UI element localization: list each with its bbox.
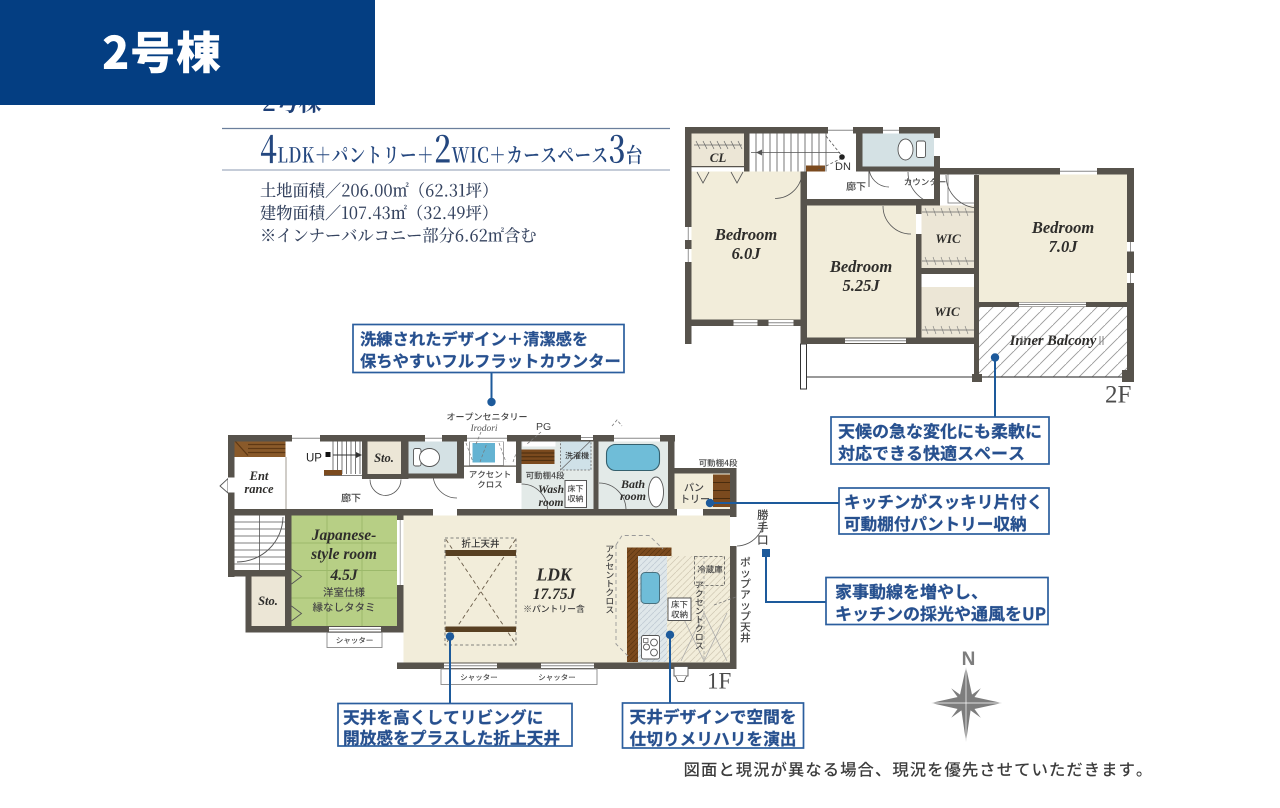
svg-text:17.75J: 17.75J — [533, 586, 577, 603]
svg-text:N: N — [962, 649, 976, 670]
svg-text:5.25J: 5.25J — [842, 276, 880, 295]
svg-text:style room: style room — [310, 546, 377, 563]
svg-text:Bedroom: Bedroom — [829, 257, 893, 276]
svg-text:room: room — [620, 489, 646, 503]
svg-text:7.0J: 7.0J — [1049, 237, 1079, 256]
svg-text:LDK: LDK — [536, 565, 573, 585]
svg-text:WIC: WIC — [934, 304, 960, 319]
svg-text:Bedroom: Bedroom — [1031, 218, 1095, 237]
svg-text:DN: DN — [835, 161, 851, 173]
svg-text:CL: CL — [710, 150, 727, 165]
svg-text:room: room — [539, 497, 564, 509]
svg-text:Ent: Ent — [249, 469, 269, 483]
svg-text:Japanese-: Japanese- — [311, 527, 377, 544]
svg-text:Irodori: Irodori — [469, 424, 497, 434]
svg-text:WIC: WIC — [935, 231, 961, 246]
svg-text:6.0J: 6.0J — [732, 244, 762, 263]
svg-text:UP: UP — [306, 453, 322, 465]
svg-text:1F: 1F — [707, 669, 731, 694]
svg-text:Bedroom: Bedroom — [714, 225, 778, 244]
svg-text:4.5J: 4.5J — [329, 567, 358, 584]
svg-text:Sto.: Sto. — [258, 594, 278, 608]
svg-text:2F: 2F — [1105, 382, 1131, 409]
svg-text:rance: rance — [244, 482, 274, 496]
svg-text:Sto.: Sto. — [374, 451, 394, 465]
svg-text:PG: PG — [536, 421, 551, 433]
